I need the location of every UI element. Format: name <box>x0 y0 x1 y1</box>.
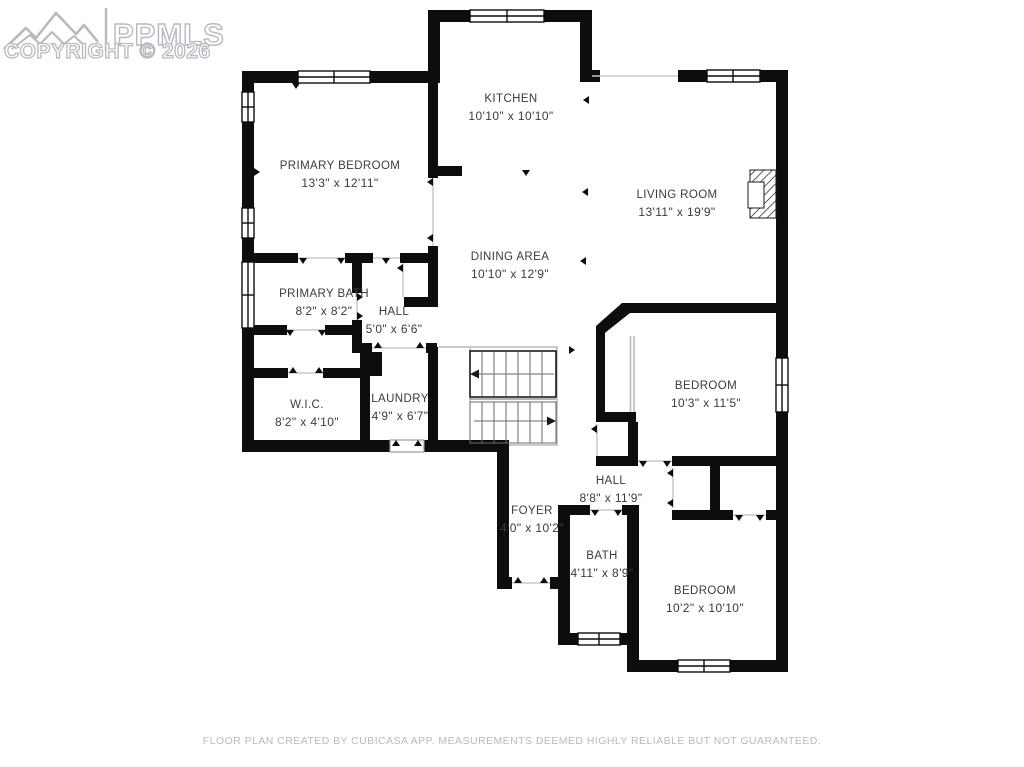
room-name: KITCHEN <box>468 91 553 108</box>
room-dimensions: 8'2" x 8'2" <box>279 303 369 320</box>
room-dimensions: 10'2" x 10'10" <box>666 600 744 617</box>
room-dimensions: 5'0" x 6'6" <box>366 321 423 338</box>
room-label: LAUNDRY4'9" x 6'7" <box>371 391 429 425</box>
room-dimensions: 13'3" x 12'11" <box>280 175 401 192</box>
room-label: KITCHEN10'10" x 10'10" <box>468 91 553 125</box>
room-dimensions: 4'11" x 8'9" <box>570 565 633 582</box>
room-dimensions: 10'10" x 10'10" <box>468 108 553 125</box>
room-label: HALL8'8" x 11'9" <box>579 473 642 507</box>
room-label: DINING AREA10'10" x 12'9" <box>471 249 550 283</box>
room-label: PRIMARY BEDROOM13'3" x 12'11" <box>280 158 401 192</box>
fireplace <box>748 170 776 218</box>
room-name: W.I.C. <box>275 397 339 414</box>
room-label: HALL5'0" x 6'6" <box>366 304 423 338</box>
room-label: BEDROOM10'3" x 11'5" <box>671 378 741 412</box>
room-name: BEDROOM <box>671 378 741 395</box>
room-dimensions: 4'0" x 10'2" <box>500 520 564 537</box>
room-label: W.I.C.8'2" x 4'10" <box>275 397 339 431</box>
room-label: FOYER4'0" x 10'2" <box>500 503 564 537</box>
logo: PPMLS COPYRIGHT © 2026 <box>4 8 225 63</box>
room-label: BATH4'11" x 8'9" <box>570 548 633 582</box>
room-dimensions: 8'8" x 11'9" <box>579 490 642 507</box>
room-name: HALL <box>366 304 423 321</box>
disclaimer-text: FLOOR PLAN CREATED BY CUBICASA APP. MEAS… <box>203 735 821 747</box>
room-label: BEDROOM10'2" x 10'10" <box>666 583 744 617</box>
room-dimensions: 10'10" x 12'9" <box>471 266 550 283</box>
room-dimensions: 10'3" x 11'5" <box>671 395 741 412</box>
room-dimensions: 13'11" x 19'9" <box>636 204 717 221</box>
floorplan-page: PPMLS COPYRIGHT © 2026 KITCHEN10'10" x 1… <box>0 0 1024 767</box>
room-name: HALL <box>579 473 642 490</box>
room-name: PRIMARY BEDROOM <box>280 158 401 175</box>
room-name: DINING AREA <box>471 249 550 266</box>
room-name: BEDROOM <box>666 583 744 600</box>
room-name: PRIMARY BATH <box>279 286 369 303</box>
room-name: BATH <box>570 548 633 565</box>
room-label: LIVING ROOM13'11" x 19'9" <box>636 187 717 221</box>
room-dimensions: 8'2" x 4'10" <box>275 414 339 431</box>
room-dimensions: 4'9" x 6'7" <box>371 408 429 425</box>
staircase <box>438 347 557 445</box>
room-name: FOYER <box>500 503 564 520</box>
room-name: LIVING ROOM <box>636 187 717 204</box>
room-label: PRIMARY BATH8'2" x 8'2" <box>279 286 369 320</box>
logo-copyright: COPYRIGHT © 2026 <box>4 40 211 63</box>
room-name: LAUNDRY <box>371 391 429 408</box>
